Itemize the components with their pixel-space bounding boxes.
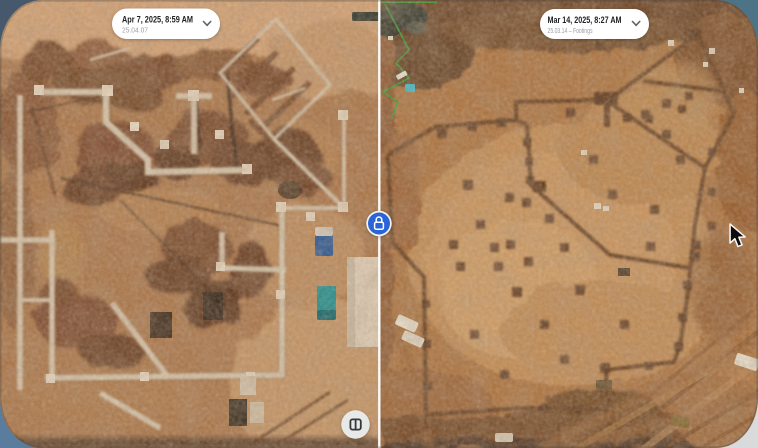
svg-text:Apr 7, 2025, 8:59 AM: Apr 7, 2025, 8:59 AM [122,15,193,25]
svg-text:25.04.07: 25.04.07 [122,26,148,35]
svg-text:Mar 14, 2025, 8:27 AM: Mar 14, 2025, 8:27 AM [548,15,622,25]
svg-text:25.03.14 – Footings: 25.03.14 – Footings [548,26,593,35]
